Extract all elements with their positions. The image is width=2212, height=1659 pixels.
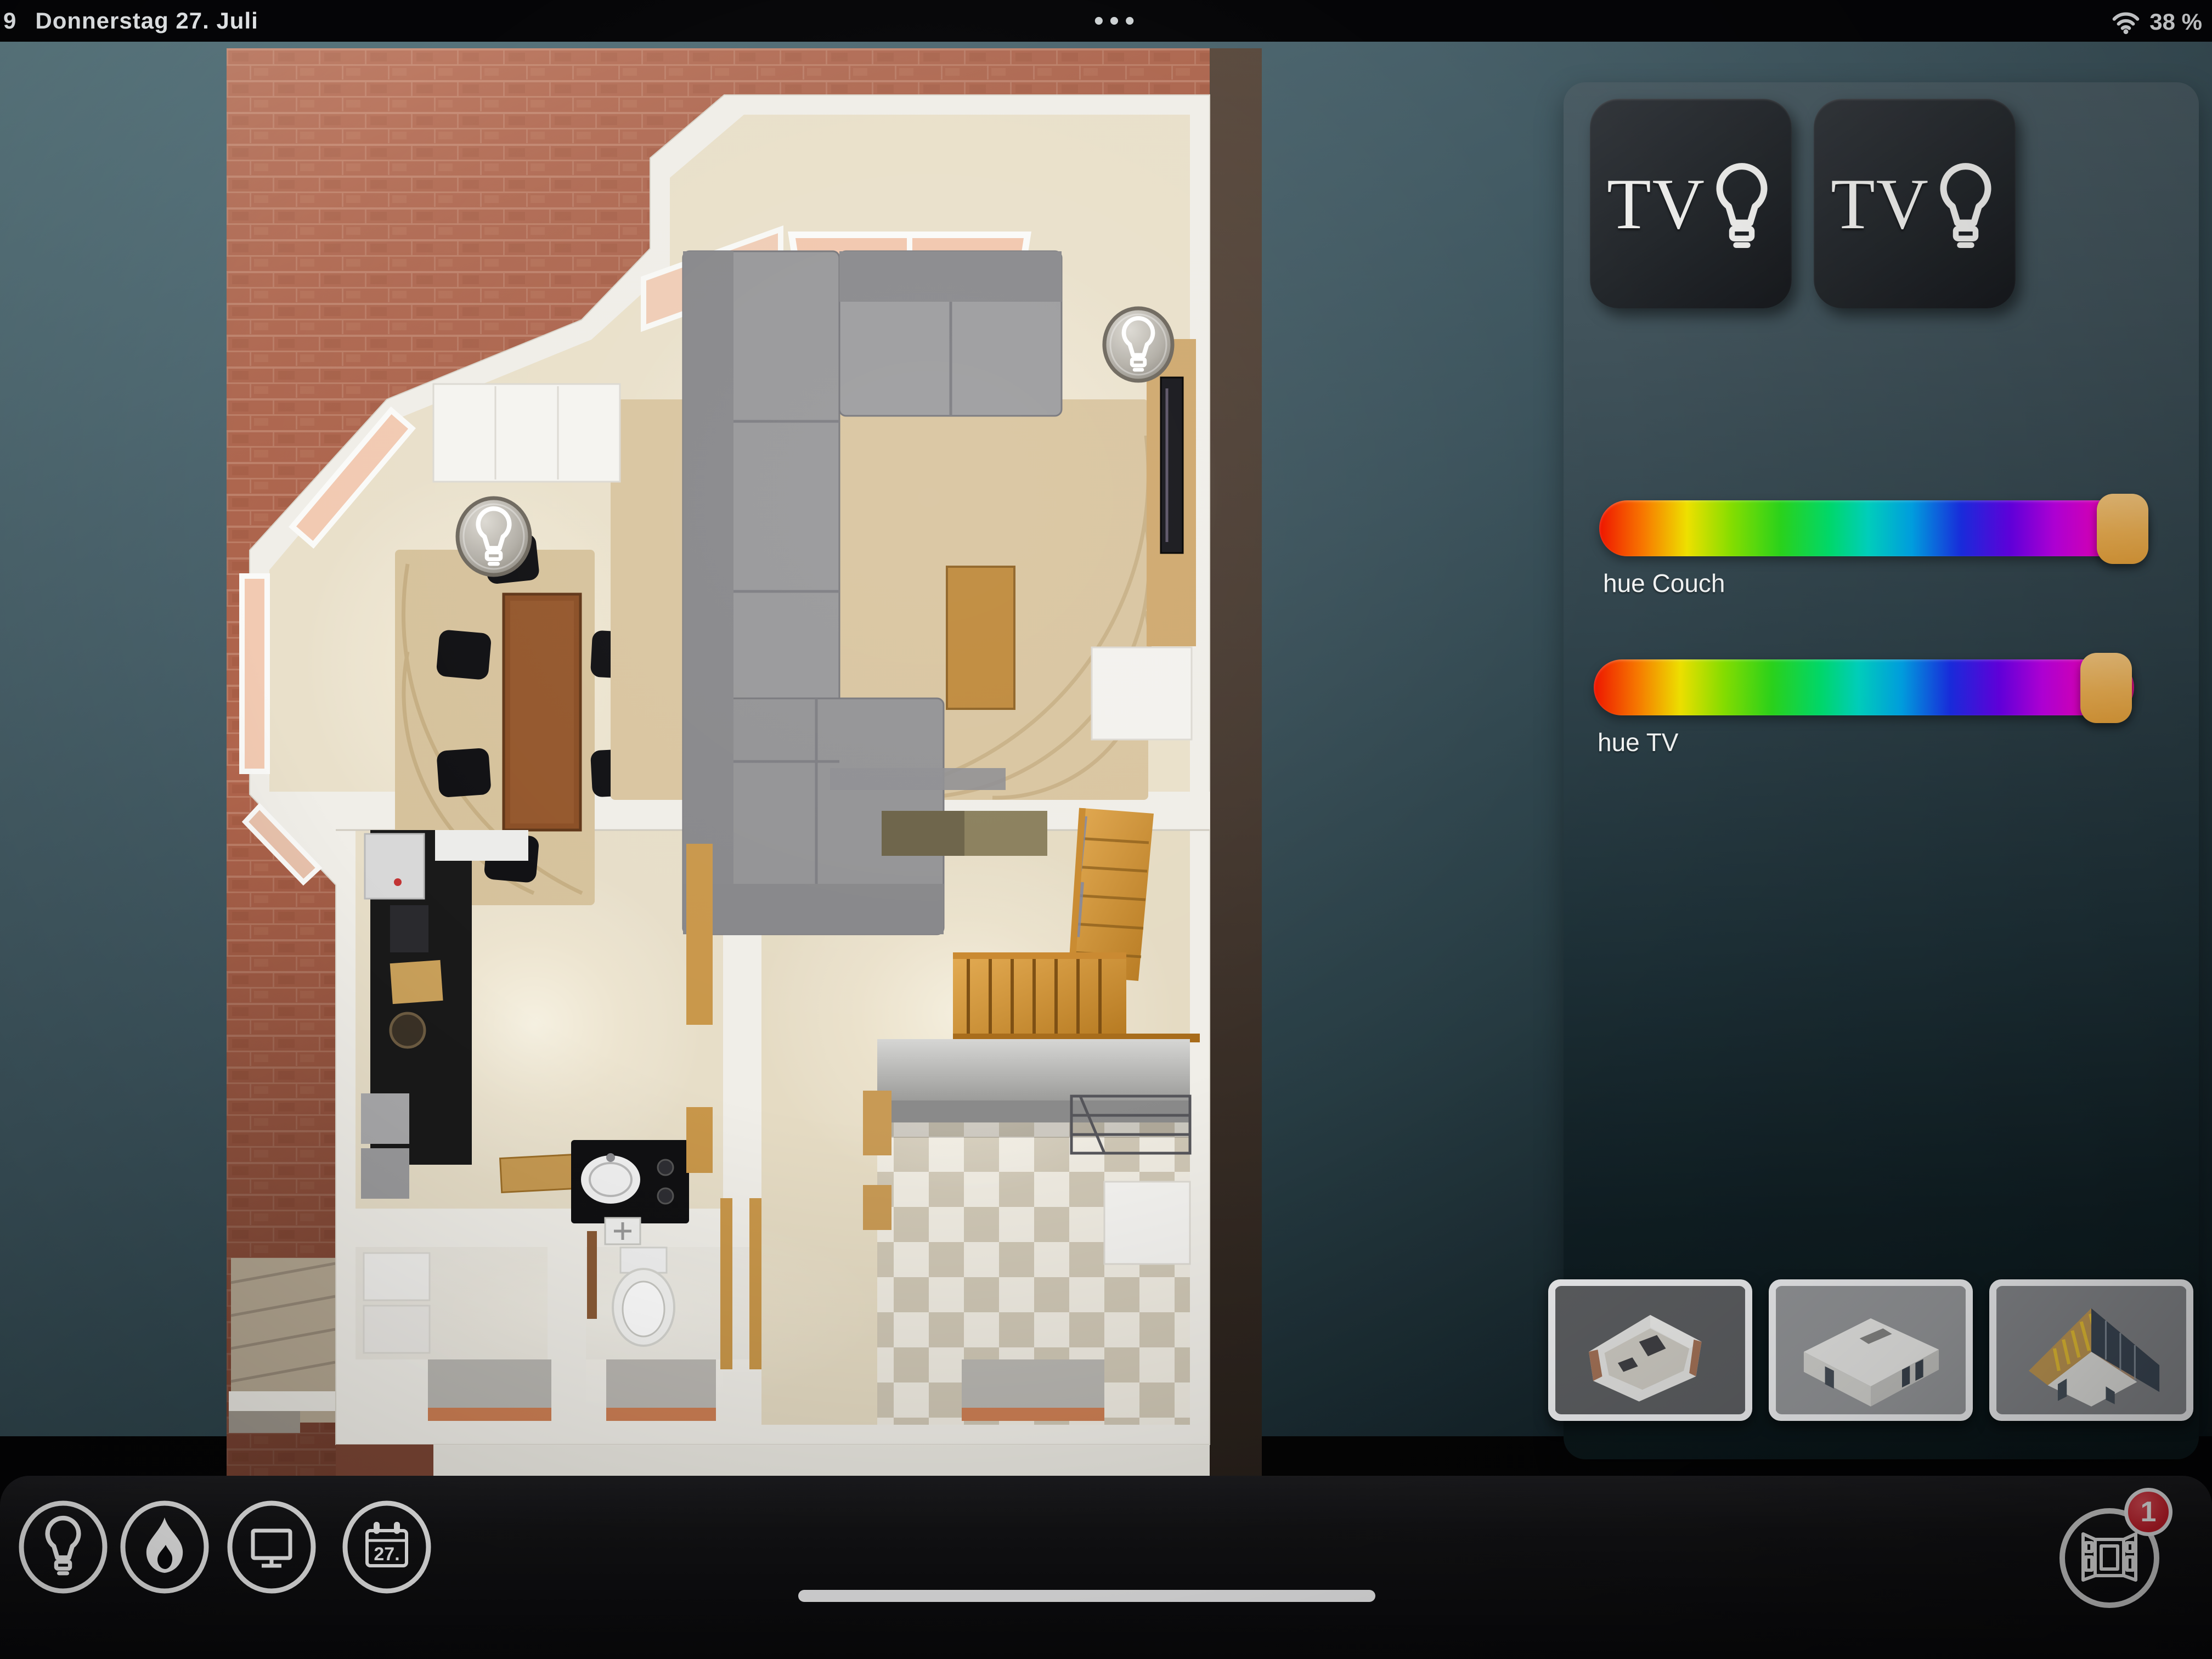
flame-icon [146,1517,183,1573]
status-date: Donnerstag 27. Juli [35,8,258,34]
monitor-icon [253,1531,290,1566]
hue-slider-couch-label: hue Couch [1603,568,1725,598]
scene-button-tv-2[interactable]: TV [1814,99,2016,308]
toolbar-calendar-button[interactable]: 27. [340,1500,433,1594]
lightbulb-icon [1709,146,1775,261]
open-window-icon [2083,1534,2136,1580]
button-ring [230,1503,313,1591]
light-button-tv[interactable] [1104,308,1172,381]
lightbulb-icon [1933,146,1999,261]
calendar-icon: 27. [367,1522,407,1566]
floor-thumbnail-2[interactable] [1769,1279,1973,1421]
scene-button-tv-1[interactable]: TV [1590,99,1792,308]
status-right: 38 % [2110,9,2202,35]
badge-count: 1 [2141,1496,2157,1528]
status-left: 9 Donnerstag 27. Juli [3,8,258,34]
light-button-dining[interactable] [458,498,530,575]
floorplan-rendering [227,48,1262,1547]
hue-slider-couch-handle[interactable] [2097,494,2148,564]
stair-half-wall [877,1039,1190,1101]
floor-thumbnail-3[interactable] [1989,1279,2193,1421]
scene-button-label: TV [1607,162,1706,246]
lightbulb-icon [48,1518,79,1573]
status-bar: 9 Donnerstag 27. Juli ••• 38 % [0,0,2212,42]
television [1161,377,1183,553]
status-time-partial: 9 [3,8,16,34]
sideboard [433,384,620,482]
multitask-dots[interactable]: ••• [1073,4,1161,37]
scene-button-label: TV [1831,162,1929,246]
wifi-icon [2110,9,2142,35]
hue-slider-tv[interactable] [1594,659,2134,715]
floorplan-canvas[interactable] [227,48,1262,1547]
notification-badge: 1 [2124,1488,2172,1536]
toolbar-tv-button[interactable] [225,1500,318,1594]
coffee-table [947,567,1014,709]
floor-thumbnail-1[interactable] [1548,1279,1752,1421]
toolbar-lights-button[interactable] [16,1500,110,1594]
kitchen-island [571,1140,689,1223]
calendar-day-label: 27. [374,1544,399,1565]
home-indicator[interactable] [798,1590,1375,1602]
bottom-toolbar [0,1476,2212,1659]
toolbar-heating-button[interactable] [118,1500,211,1594]
plan-right-shadow-strip [1210,48,1262,1547]
floor-thumbnail-roofed-image [1775,1286,1966,1414]
battery-percent: 38 % [2149,9,2202,35]
floor-thumbnail-walls-image [1555,1286,1746,1414]
hue-slider-tv-label: hue TV [1598,727,1678,757]
exterior-walkway [229,1258,336,1433]
hue-slider-tv-handle[interactable] [2080,653,2132,723]
wc-door [587,1231,597,1319]
hue-slider-couch[interactable] [1599,500,2148,556]
storage-box [1092,647,1192,740]
floor-thumbnail-attic-image [1996,1286,2187,1414]
